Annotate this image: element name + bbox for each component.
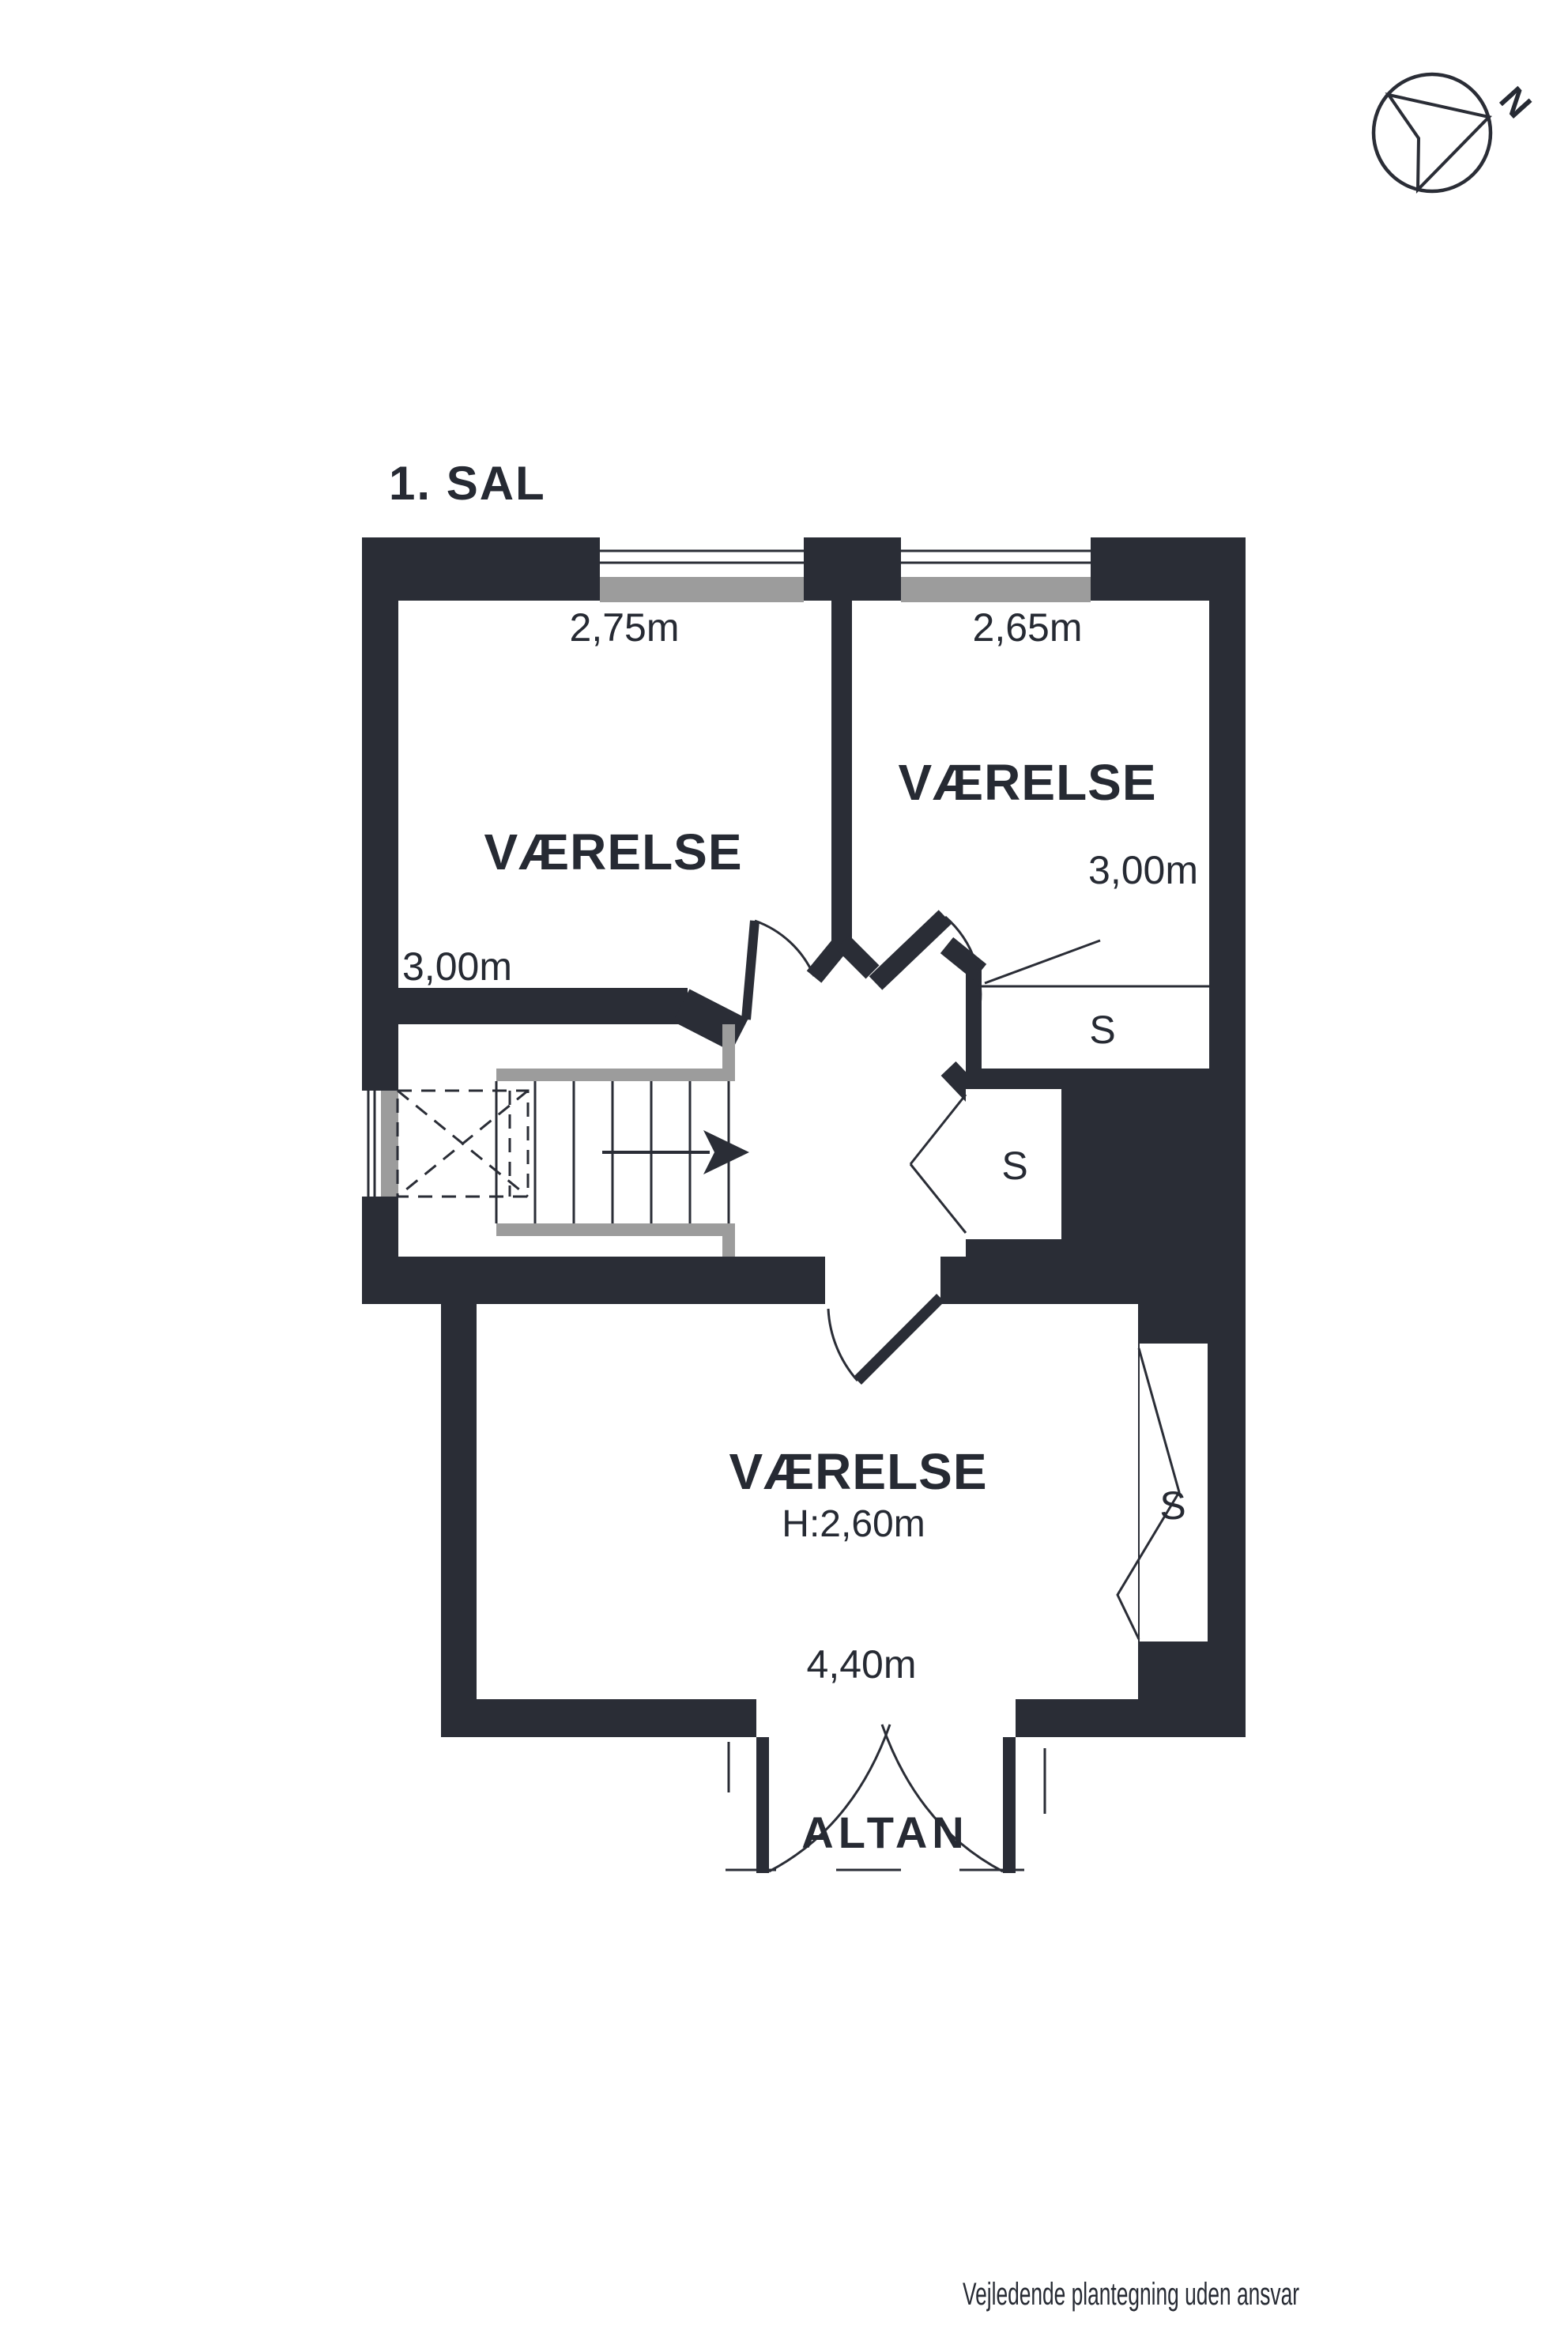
window-left-side [362, 1091, 398, 1197]
room-1-depth: 3,00m [402, 944, 512, 989]
stair-railing-connector-top [722, 1024, 735, 1069]
room-1-width: 2,75m [570, 605, 680, 650]
room-2-depth: 3,00m [1088, 848, 1198, 892]
closet-1-label: S [1089, 1008, 1115, 1052]
room-3-width: 4,40m [807, 1642, 917, 1687]
room-3-name: VÆRELSE [729, 1443, 987, 1500]
footer-disclaimer: Vejledende plantegning uden ansvar [963, 2277, 1299, 2312]
closet-3-label: S [1159, 1483, 1185, 1528]
floor-title: 1. SAL [389, 457, 546, 510]
balcony-door-leaf-right [1003, 1737, 1016, 1873]
stair-railing-bottom [496, 1223, 735, 1236]
room-3-ceiling-height: H:2,60m [782, 1503, 925, 1545]
window-top-left [600, 537, 804, 602]
room-2-width: 2,65m [973, 605, 1083, 650]
closet-2-label: S [1001, 1144, 1027, 1188]
room-2-name: VÆRELSE [898, 754, 1156, 811]
stair-railing-connector-bottom [722, 1236, 735, 1257]
room-1-name: VÆRELSE [484, 824, 742, 880]
balcony-door-leaf-left [756, 1737, 769, 1873]
window-top-right [901, 537, 1091, 602]
floorplan-page: 1. SAL [0, 0, 1568, 2352]
floor-plan: 1. SAL [0, 0, 1568, 2352]
stair-railing-top [496, 1069, 735, 1081]
page-background [0, 0, 1568, 2352]
balcony-label: ALTAN [801, 1807, 968, 1857]
